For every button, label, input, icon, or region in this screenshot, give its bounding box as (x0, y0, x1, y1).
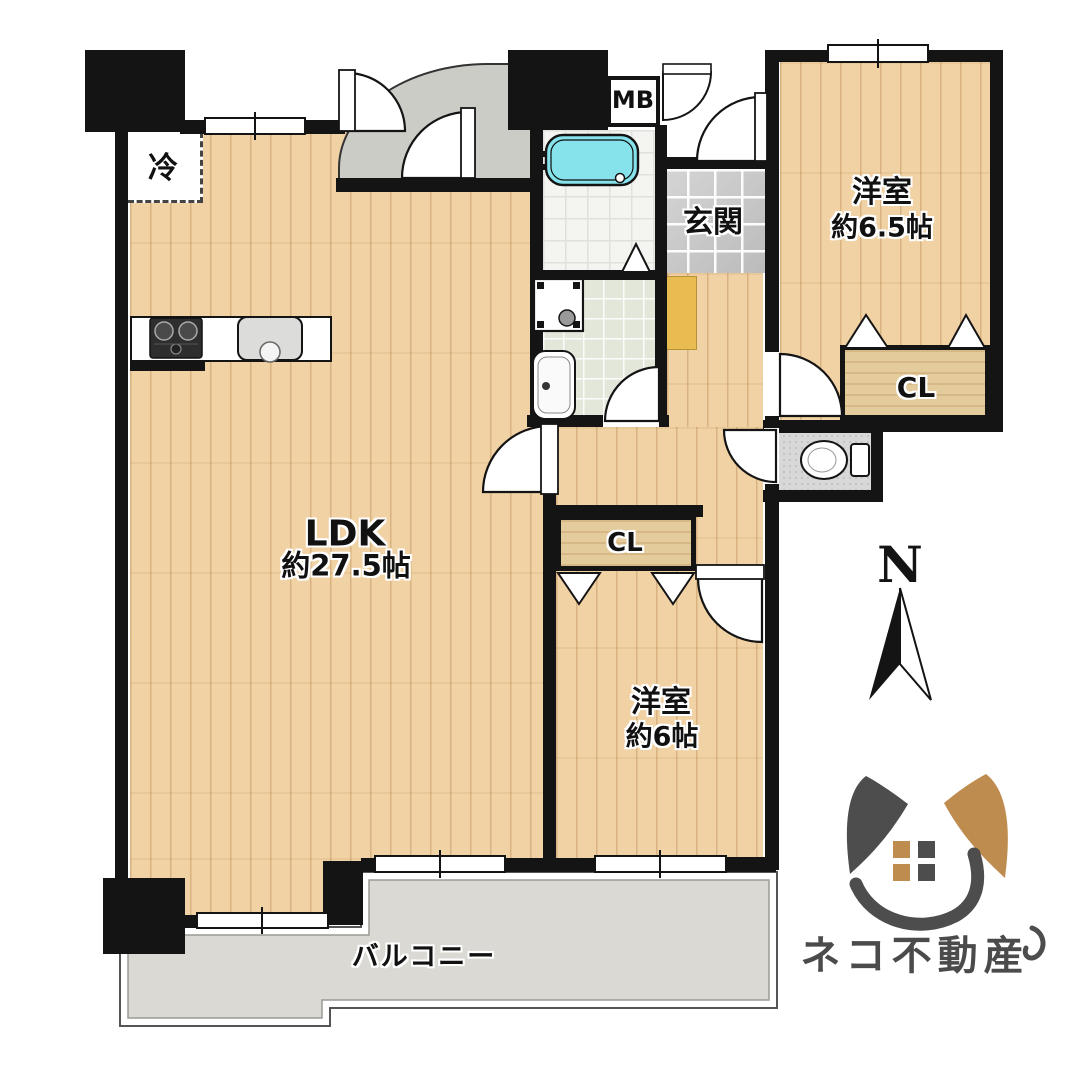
meter-box-label: MB (612, 87, 654, 115)
bathtub-icon (536, 135, 638, 185)
washing-machine-icon (534, 279, 583, 331)
door-bedroom1 (764, 352, 842, 416)
bath-door-mark (622, 244, 650, 272)
door-washroom (603, 367, 659, 427)
closet2-door-mark-left (558, 573, 600, 604)
door-meter-side (663, 64, 711, 120)
compass-label: N (877, 535, 923, 594)
door-corridor (402, 108, 475, 178)
window-bedroom1-top (828, 39, 928, 68)
vanity-sink-icon (533, 351, 575, 419)
door-ldk-hall (483, 424, 558, 494)
bedroom2-name: 洋室 (631, 686, 691, 721)
genkan-label: 玄関 (683, 206, 743, 241)
stove-icon (150, 318, 202, 358)
closet2-label: CL (607, 529, 643, 559)
kitchen-sink-icon (238, 317, 302, 362)
door-entrance (697, 93, 767, 161)
door-bedroom2 (696, 565, 764, 642)
logo-company-name: ネコ不動産 (800, 923, 1029, 981)
door-ldk-top (339, 70, 405, 131)
closet1-door-mark-right (948, 315, 985, 348)
toilet-icon (801, 441, 869, 479)
window-ldk-top (205, 112, 305, 140)
compass-north: N (869, 535, 931, 700)
bedroom2-size: 約6帖 (626, 721, 699, 752)
bedroom1-name: 洋室 (852, 176, 912, 211)
closet2-door-mark-right (652, 573, 694, 604)
closet1-door-mark-left (845, 315, 888, 348)
window-ldk-bottom-right (375, 850, 505, 878)
refrigerator-label: 冷 (148, 152, 178, 187)
closet1-label: CL (897, 372, 935, 404)
window-ldk-bottom-left (197, 907, 328, 934)
window-bedroom2-bottom (595, 850, 726, 878)
ldk-size: 約27.5帖 (281, 549, 411, 582)
door-toilet (724, 428, 779, 484)
bedroom1-size: 約6.5帖 (831, 212, 933, 243)
floorplan-canvas: N 冷 MB 玄関 洋室 約6.5帖 CL LDK 約27.5帖 CL 洋室 約… (0, 0, 1080, 1080)
balcony-label: バルコニー (352, 941, 496, 972)
